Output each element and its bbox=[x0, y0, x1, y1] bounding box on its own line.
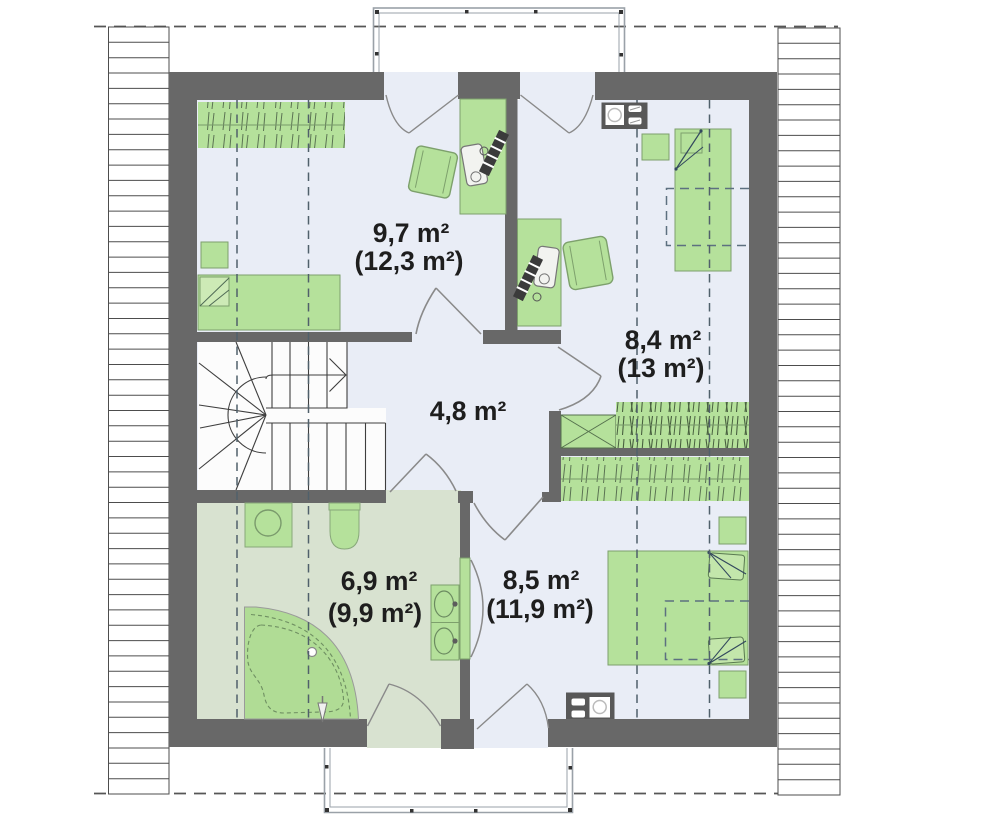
svg-text:9,7 m²: 9,7 m² bbox=[373, 218, 450, 248]
svg-text:(12,3 m²): (12,3 m²) bbox=[355, 246, 464, 276]
svg-text:8,5 m²: 8,5 m² bbox=[503, 565, 580, 595]
svg-text:(9,9 m²): (9,9 m²) bbox=[328, 598, 422, 628]
svg-text:(13 m²): (13 m²) bbox=[618, 353, 705, 383]
svg-text:6,9 m²: 6,9 m² bbox=[341, 566, 418, 596]
svg-text:8,4 m²: 8,4 m² bbox=[625, 325, 702, 355]
svg-text:(11,9 m²): (11,9 m²) bbox=[486, 594, 594, 624]
svg-text:4,8 m²: 4,8 m² bbox=[430, 396, 507, 426]
